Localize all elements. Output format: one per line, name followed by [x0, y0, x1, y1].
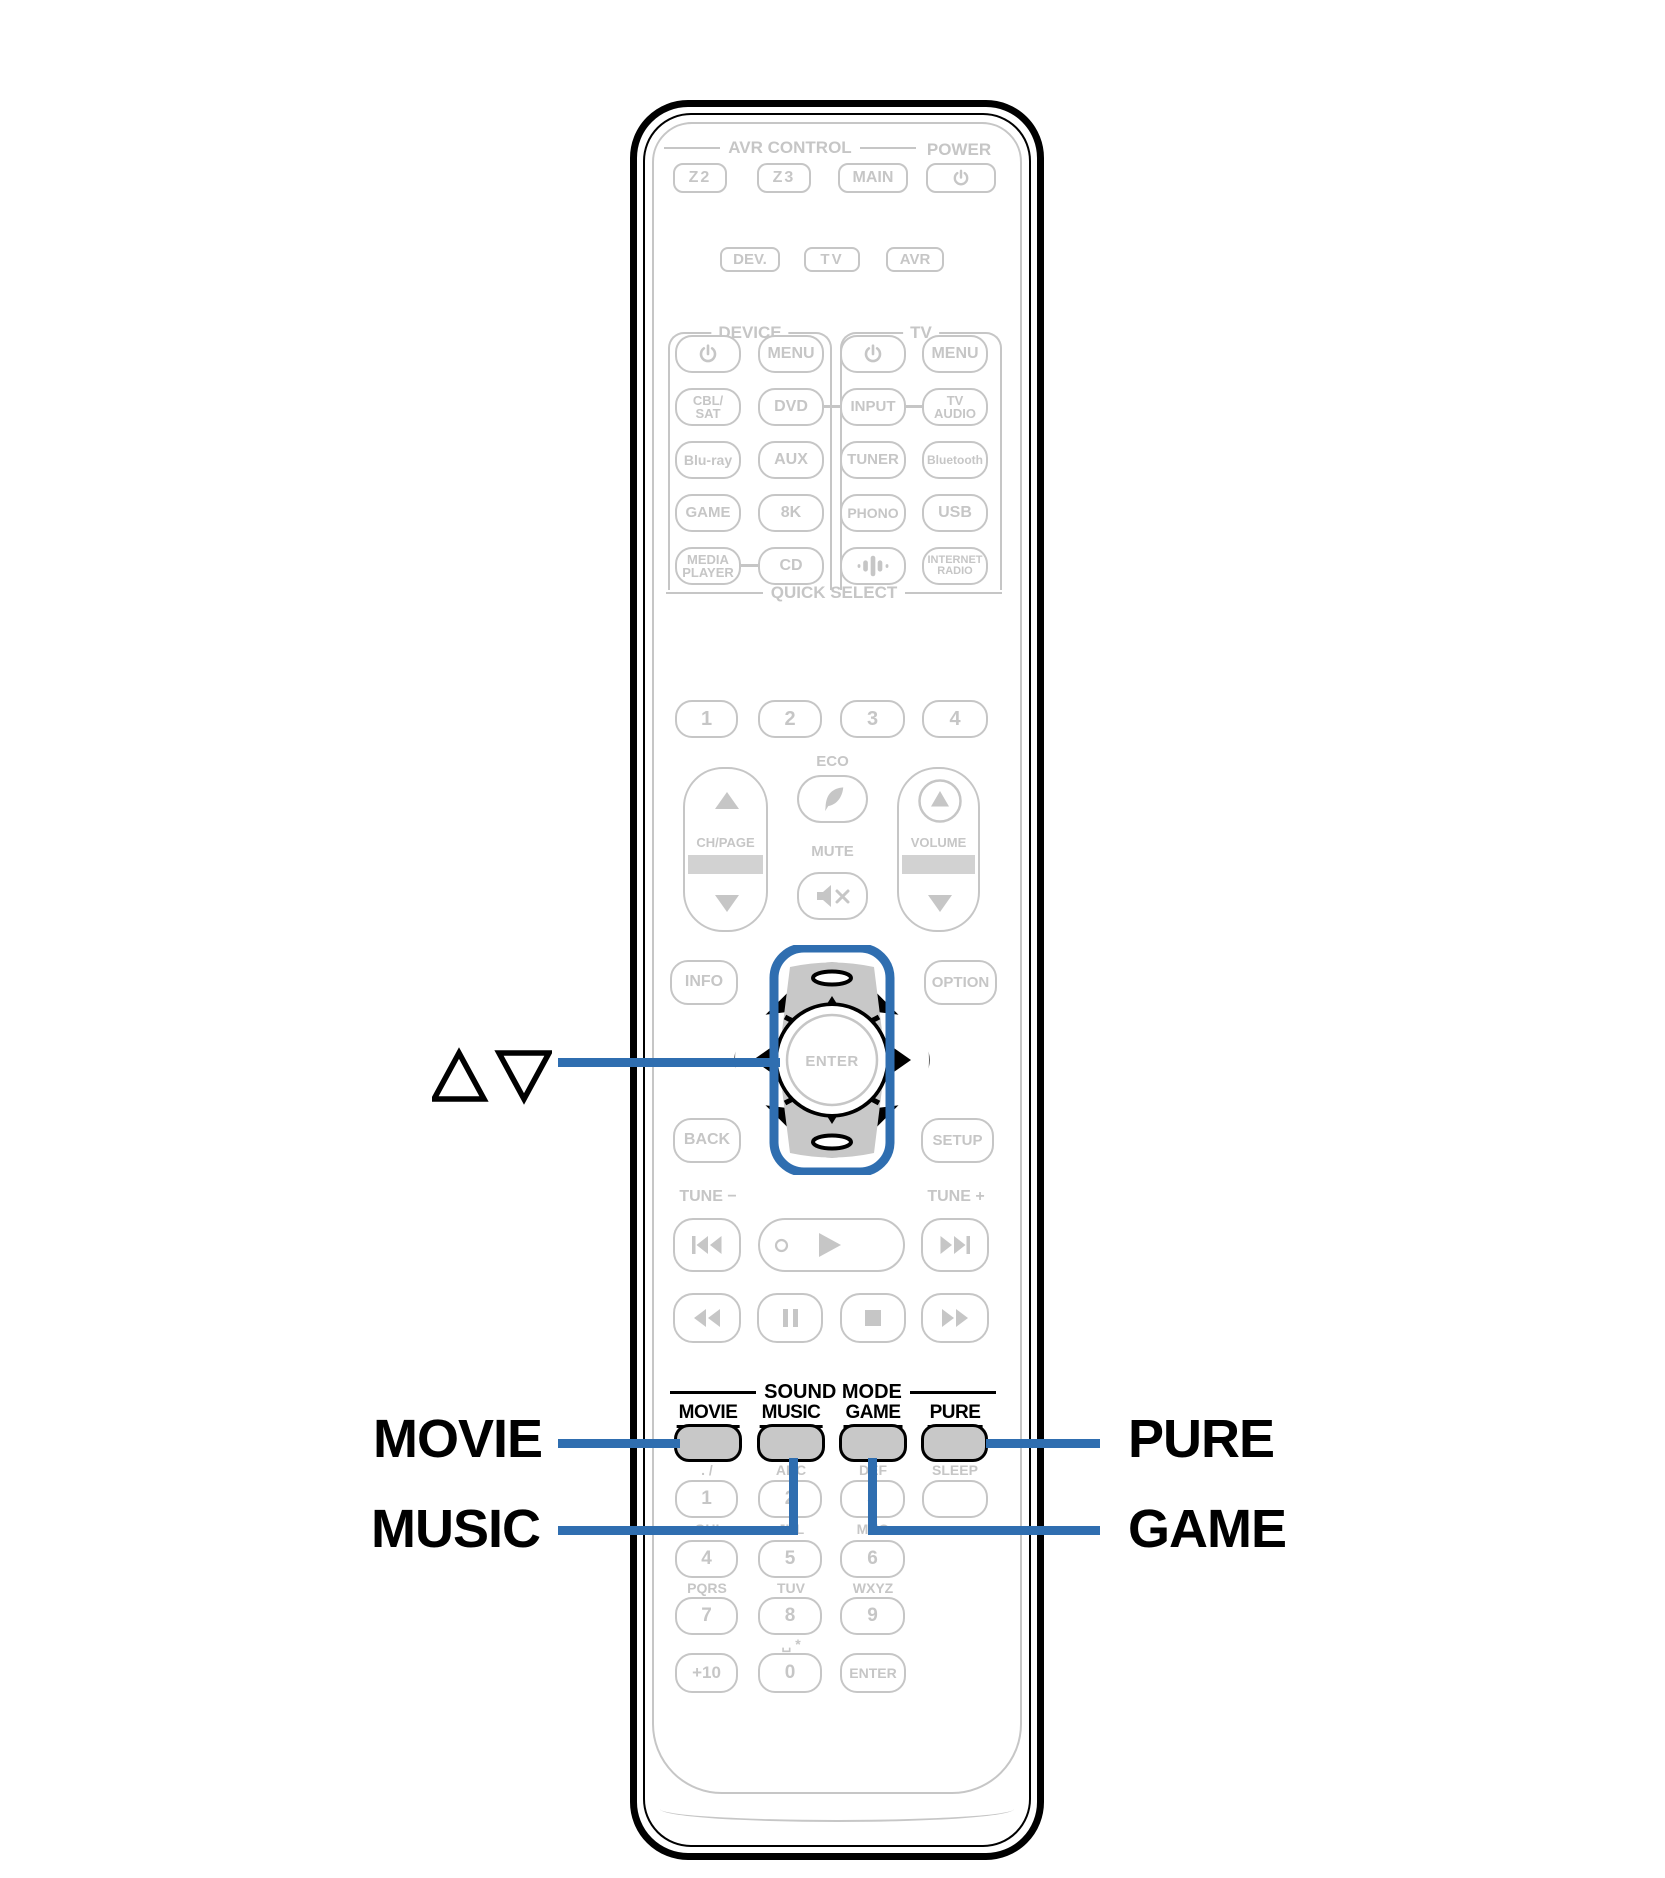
- tune-plus-label: TUNE +: [916, 1188, 996, 1206]
- tv-menu-button[interactable]: MENU: [922, 335, 988, 373]
- quick-select-3-button[interactable]: 3: [840, 700, 905, 738]
- key1-letters: . /: [673, 1462, 741, 1478]
- back-button[interactable]: BACK: [673, 1118, 741, 1163]
- movie-button[interactable]: [674, 1424, 742, 1462]
- plus10-button[interactable]: +10: [675, 1653, 738, 1693]
- power-button[interactable]: [926, 163, 996, 193]
- callout-line-music-h: [558, 1526, 798, 1535]
- skip-back-button[interactable]: [673, 1218, 741, 1272]
- key-5-button[interactable]: 5: [758, 1540, 822, 1578]
- ch-page-label: CH/PAGE: [685, 835, 766, 850]
- sleep-header: SLEEP: [921, 1462, 989, 1478]
- cursor-up-pill: [813, 972, 851, 985]
- quick-select-2-button[interactable]: 2: [758, 700, 822, 738]
- tuner-button[interactable]: TUNER: [840, 441, 906, 479]
- volume-label: VOLUME: [899, 835, 978, 850]
- device-menu-button[interactable]: MENU: [758, 335, 824, 373]
- game-input-button[interactable]: GAME: [675, 494, 741, 532]
- play-icon: [817, 1231, 843, 1259]
- setup-button[interactable]: SETUP: [921, 1118, 994, 1163]
- rocker-band: [902, 855, 975, 874]
- callout-line-game-h: [868, 1526, 1100, 1535]
- usb-button[interactable]: USB: [922, 494, 988, 532]
- stop-icon: [864, 1309, 882, 1327]
- key7-letters: PQRS: [673, 1580, 741, 1596]
- callout-line-pure: [986, 1439, 1100, 1448]
- bluetooth-button[interactable]: Bluetooth: [922, 441, 988, 479]
- callout-music: MUSIC: [290, 1498, 540, 1560]
- key-0-button[interactable]: 0: [758, 1653, 822, 1693]
- fast-forward-button[interactable]: [921, 1293, 989, 1343]
- key-7-button[interactable]: 7: [675, 1597, 738, 1635]
- device-power-button[interactable]: [675, 335, 741, 373]
- tv-power-button[interactable]: [840, 335, 906, 373]
- tv-audio-button[interactable]: TVAUDIO: [922, 388, 988, 426]
- power-header: POWER: [920, 140, 998, 160]
- skip-forward-icon: [938, 1234, 972, 1256]
- avr-mode-button[interactable]: AVR: [886, 247, 944, 272]
- pause-button[interactable]: [757, 1293, 823, 1343]
- volume-up-icon[interactable]: [916, 777, 964, 825]
- dev-mode-button[interactable]: DEV.: [720, 247, 780, 272]
- sound-mode-header: SOUND MODE: [670, 1381, 996, 1403]
- tv-mode-button[interactable]: TV: [804, 247, 860, 272]
- key0-letters: ␣ *: [757, 1636, 825, 1653]
- eco-header: ECO: [797, 753, 868, 770]
- cursor-down-pill: [813, 1136, 851, 1149]
- zone2-button[interactable]: Z2: [673, 163, 727, 193]
- cursor-up-down-icon: [432, 1046, 552, 1106]
- skip-back-icon: [690, 1234, 724, 1256]
- blu-ray-button[interactable]: Blu-ray: [675, 441, 741, 479]
- cd-button[interactable]: CD: [758, 547, 824, 585]
- callout-line-game-v: [868, 1458, 877, 1535]
- key9-letters: WXYZ: [839, 1580, 907, 1596]
- power-icon: [696, 342, 720, 366]
- skip-forward-button[interactable]: [921, 1218, 989, 1272]
- mute-header: MUTE: [797, 843, 868, 860]
- quick-select-4-button[interactable]: 4: [922, 700, 988, 738]
- keypad-enter-button[interactable]: ENTER: [840, 1653, 906, 1693]
- tv-input-button[interactable]: INPUT: [840, 388, 906, 426]
- connector-line: [740, 564, 758, 567]
- cbl-sat-button[interactable]: CBL/SAT: [675, 388, 741, 426]
- record-dot-icon: [774, 1238, 789, 1253]
- connector-line: [824, 405, 840, 408]
- key-6-button[interactable]: 6: [840, 1540, 905, 1578]
- key8-letters: TUV: [757, 1580, 825, 1596]
- music-button[interactable]: [757, 1424, 825, 1462]
- key-9-button[interactable]: 9: [840, 1597, 905, 1635]
- internet-radio-button[interactable]: INTERNETRADIO: [922, 547, 988, 585]
- mute-button[interactable]: [797, 872, 868, 920]
- channel-down-icon[interactable]: [714, 894, 740, 913]
- connector-line: [906, 405, 922, 408]
- quick-select-1-button[interactable]: 1: [675, 700, 738, 738]
- quick-select-header: QUICK SELECT: [666, 584, 1002, 602]
- streaming-audio-button[interactable]: [840, 547, 906, 585]
- key-1-button[interactable]: 1: [675, 1480, 738, 1518]
- callout-line-music-v: [789, 1458, 798, 1535]
- callout-pure: PURE: [1128, 1408, 1274, 1470]
- callout-movie: MOVIE: [290, 1408, 542, 1470]
- diagram-canvas: AVR CONTROL POWER Z2 Z3 MAIN DEV. TV AVR…: [0, 0, 1665, 1878]
- volume-rocker[interactable]: VOLUME: [897, 767, 980, 932]
- power-icon: [950, 167, 972, 189]
- rocker-band: [688, 855, 763, 874]
- streaming-audio-icon: [852, 552, 894, 580]
- callout-line-movie: [558, 1439, 680, 1448]
- key-4-button[interactable]: 4: [675, 1540, 738, 1578]
- game-button[interactable]: [839, 1424, 907, 1462]
- main-zone-button[interactable]: MAIN: [838, 163, 908, 193]
- volume-down-icon[interactable]: [927, 894, 953, 913]
- stop-button[interactable]: [840, 1293, 906, 1343]
- pause-icon: [782, 1308, 799, 1328]
- aux-button[interactable]: AUX: [758, 441, 824, 479]
- rewind-icon: [692, 1308, 722, 1328]
- play-button[interactable]: [758, 1218, 905, 1272]
- key-8-button[interactable]: 8: [758, 1597, 822, 1635]
- callout-line-cursor: [558, 1058, 780, 1067]
- sleep-button[interactable]: [922, 1480, 988, 1518]
- battery-cover-seam: [660, 1796, 1014, 1822]
- dvd-button[interactable]: DVD: [758, 388, 824, 426]
- enter-label: ENTER: [805, 1053, 858, 1070]
- speaker-mute-icon: [815, 883, 851, 909]
- media-player-button[interactable]: MEDIAPLAYER: [675, 547, 741, 585]
- fast-forward-icon: [940, 1308, 970, 1328]
- ch-page-rocker[interactable]: CH/PAGE: [683, 767, 768, 932]
- phono-button[interactable]: PHONO: [840, 494, 906, 532]
- zone3-button[interactable]: Z3: [757, 163, 811, 193]
- pure-button[interactable]: [921, 1424, 988, 1462]
- avr-control-header: AVR CONTROL: [664, 138, 916, 158]
- tune-minus-label: TUNE −: [668, 1188, 748, 1206]
- power-icon: [861, 342, 885, 366]
- channel-up-icon[interactable]: [714, 791, 740, 810]
- eco-button[interactable]: [797, 775, 868, 823]
- callout-game: GAME: [1128, 1498, 1286, 1560]
- rewind-button[interactable]: [673, 1293, 741, 1343]
- 8k-button[interactable]: 8K: [758, 494, 824, 532]
- leaf-icon: [819, 784, 847, 814]
